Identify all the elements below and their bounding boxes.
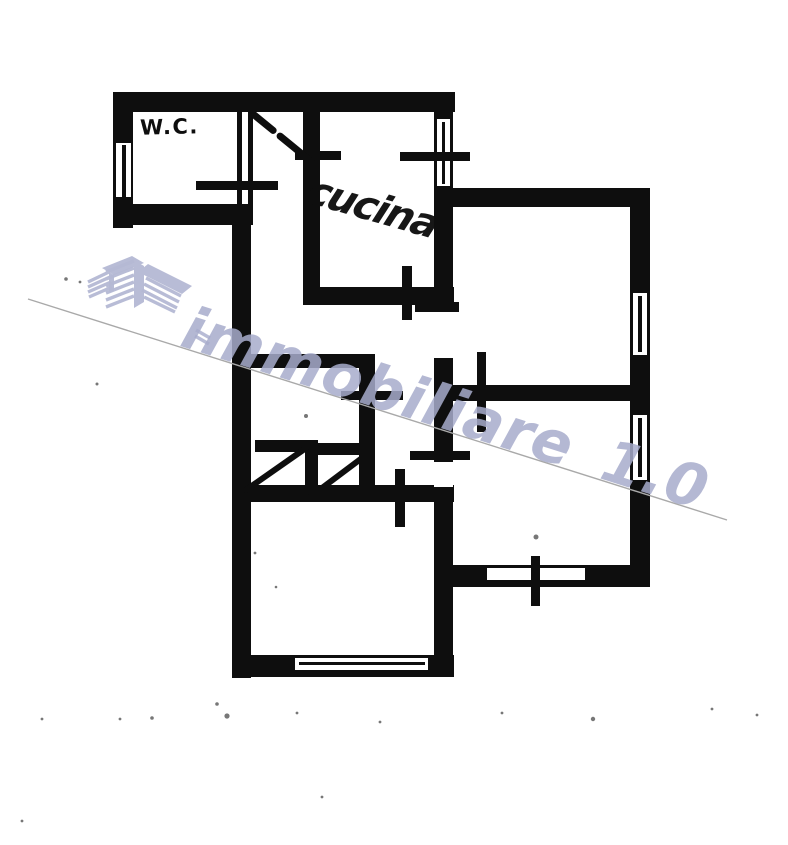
right-exterior-wall — [630, 188, 650, 587]
upper-right-room-top-wall — [434, 188, 650, 207]
left-exterior-wall — [232, 204, 251, 678]
kitchen-window-marker — [400, 152, 470, 161]
scan-speck — [150, 716, 154, 720]
scan-speck — [756, 714, 759, 717]
bottom-left-window-midline — [299, 662, 425, 665]
scan-speck — [275, 586, 278, 589]
scan-speck — [64, 277, 68, 281]
scan-speck — [215, 702, 219, 706]
lower-right-window-midline — [638, 418, 642, 477]
bottom-left-room-door-marker — [395, 469, 405, 527]
wc-window-midline — [122, 145, 126, 197]
floorplan-drawing — [0, 0, 788, 845]
scan-speck — [321, 796, 324, 799]
left-door-swing — [246, 448, 306, 490]
scan-speck — [96, 383, 99, 386]
scanned-floorplan-page: W.C. cucina — [0, 0, 788, 845]
hall-lower-right-door-marker — [410, 451, 470, 460]
scan-speck — [304, 414, 308, 418]
scan-speck — [21, 820, 24, 823]
kitchen-bottom-door-marker — [402, 266, 412, 320]
middle-room-right-wall — [359, 354, 375, 492]
scan-speck — [379, 721, 382, 724]
wc-door-wall-inner-line — [248, 112, 253, 209]
middle-room-top-wall — [248, 354, 374, 368]
scan-speck — [296, 712, 299, 715]
upper-door-gap — [434, 310, 453, 358]
bottom-right-window-marker — [531, 556, 540, 606]
hall-bottom-wall — [232, 485, 454, 502]
hall-upper-right-door-marker — [415, 302, 459, 312]
middle-room-door-marker — [341, 391, 403, 400]
scan-speck — [254, 552, 257, 555]
scan-speck — [711, 708, 714, 711]
top-exterior-wall — [113, 92, 455, 112]
scan-speck — [119, 718, 122, 721]
scan-speck — [79, 281, 82, 284]
scan-speck — [501, 712, 504, 715]
wc-door-marker — [196, 181, 278, 190]
upper-right-window-midline — [638, 296, 642, 352]
scan-speck — [591, 717, 595, 721]
scan-speck — [534, 535, 539, 540]
scan-speck — [224, 713, 229, 718]
lower-door-gap — [434, 462, 453, 487]
door-lintel-right — [318, 443, 371, 455]
divider-door-marker — [477, 352, 486, 432]
scan-speck — [41, 718, 44, 721]
wc-door-wall-outer-line — [237, 112, 242, 209]
room-label-wc: W.C. — [140, 114, 199, 140]
